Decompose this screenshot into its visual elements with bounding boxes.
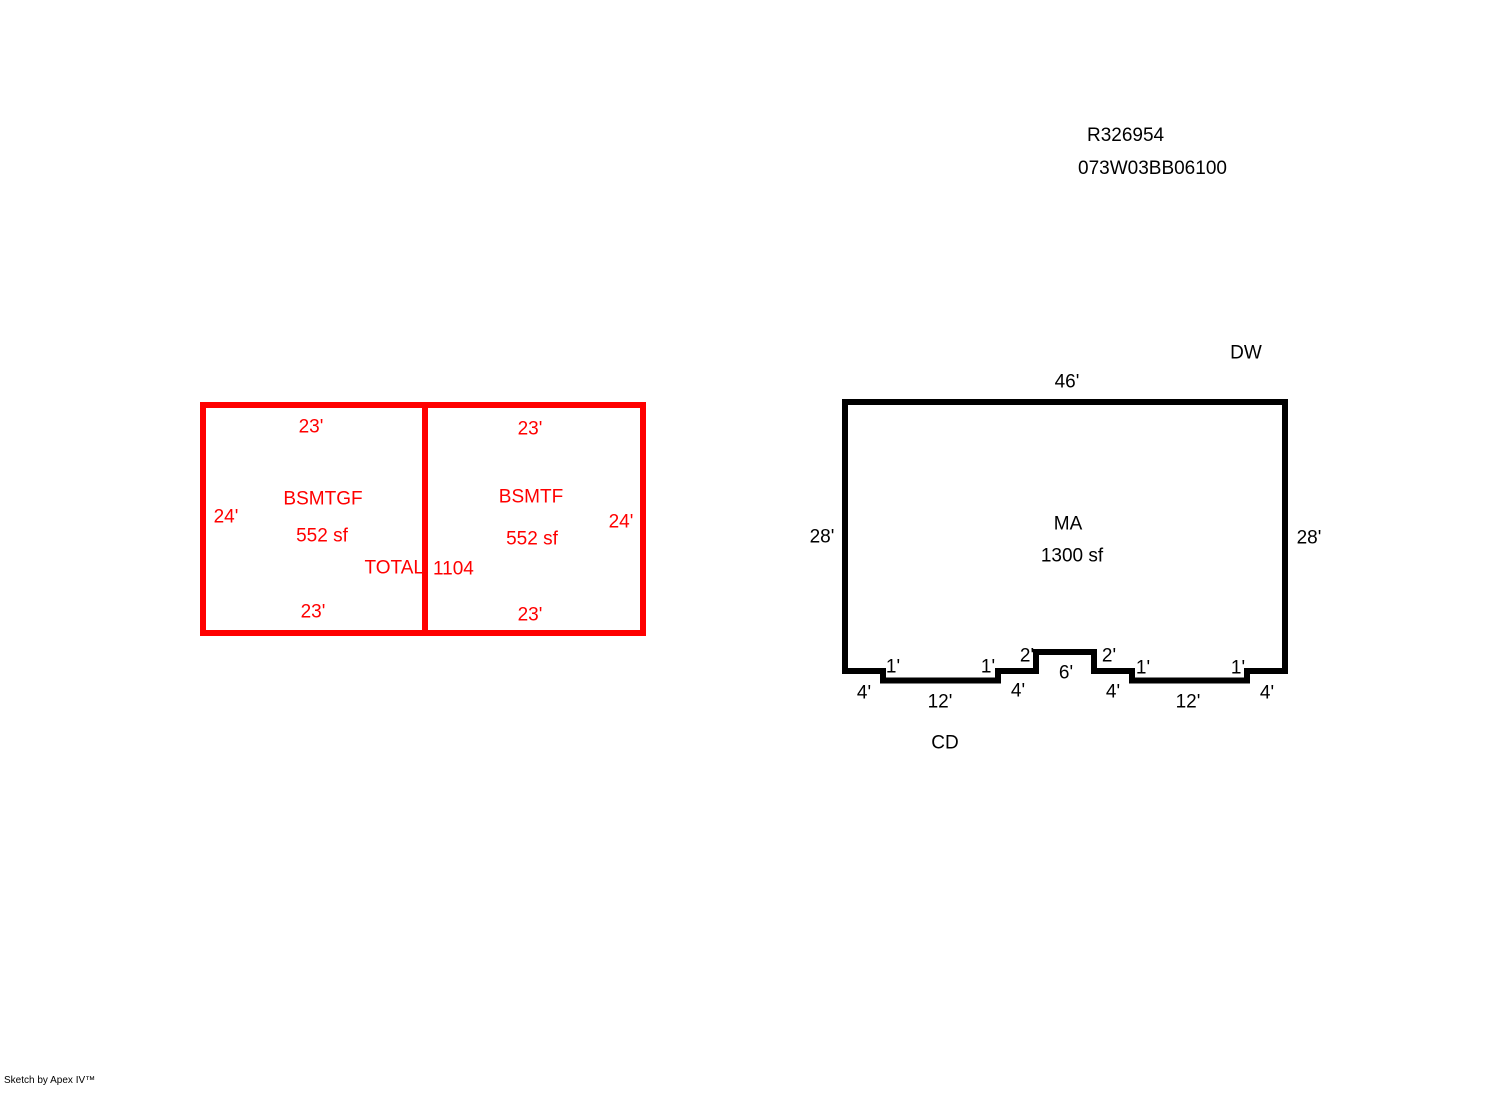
ma-bottom-dim-9: 4' [1106,683,1120,702]
ma-bottom-dim-6: 2' [1020,647,1034,666]
bsmtgf-dim-bottom: 23' [301,603,326,622]
basement-total-label: TOTAL [365,559,424,578]
parcel-id: 073W03BB06100 [1078,159,1227,178]
sketch-page: R326954 073W03BB06100 23' BSMTGF 552 sf … [0,0,1492,1094]
ma-bottom-dim-7: 6' [1059,664,1073,683]
ma-dim-right: 28' [1297,529,1322,548]
main-area-outline [845,402,1285,681]
ma-bottom-dim-4: 1' [981,658,995,677]
ma-bottom-dim-2: 1' [886,658,900,677]
ma-dim-top: 46' [1055,373,1080,392]
ma-dim-left: 28' [810,528,835,547]
ma-bottom-dim-3: 12' [928,693,953,712]
bsmtgf-dim-left: 24' [214,508,239,527]
ma-bottom-dim-11: 12' [1176,693,1201,712]
bsmtgf-dim-top: 23' [299,418,324,437]
bsmtgf-area-value: 552 sf [296,527,348,546]
ma-bottom-dim-10: 1' [1136,659,1150,678]
bsmtf-room-name: BSMTF [499,488,563,507]
ma-bottom-dim-5: 4' [1011,682,1025,701]
basement-outline [203,405,643,633]
ma-room-name: MA [1054,515,1083,534]
sketch-canvas-svg [0,0,1492,1094]
bsmtf-area-value: 552 sf [506,530,558,549]
bsmtgf-room-name: BSMTGF [283,490,362,509]
ma-bottom-dim-8: 2' [1102,647,1116,666]
dw-area-label: DW [1230,344,1262,363]
bsmtf-dim-right: 24' [609,513,634,532]
ma-bottom-dim-13: 4' [1260,684,1274,703]
sketch-credit: Sketch by Apex IV™ [4,1075,95,1087]
basement-total-value: 1104 [433,560,474,579]
ma-bottom-dim-1: 4' [857,684,871,703]
cd-area-label: CD [931,734,958,753]
ma-bottom-dim-12: 1' [1231,659,1245,678]
bsmtf-dim-top: 23' [518,420,543,439]
ma-area-value: 1300 sf [1041,547,1103,566]
record-number: R326954 [1087,126,1164,145]
bsmtf-dim-bottom: 23' [518,606,543,625]
